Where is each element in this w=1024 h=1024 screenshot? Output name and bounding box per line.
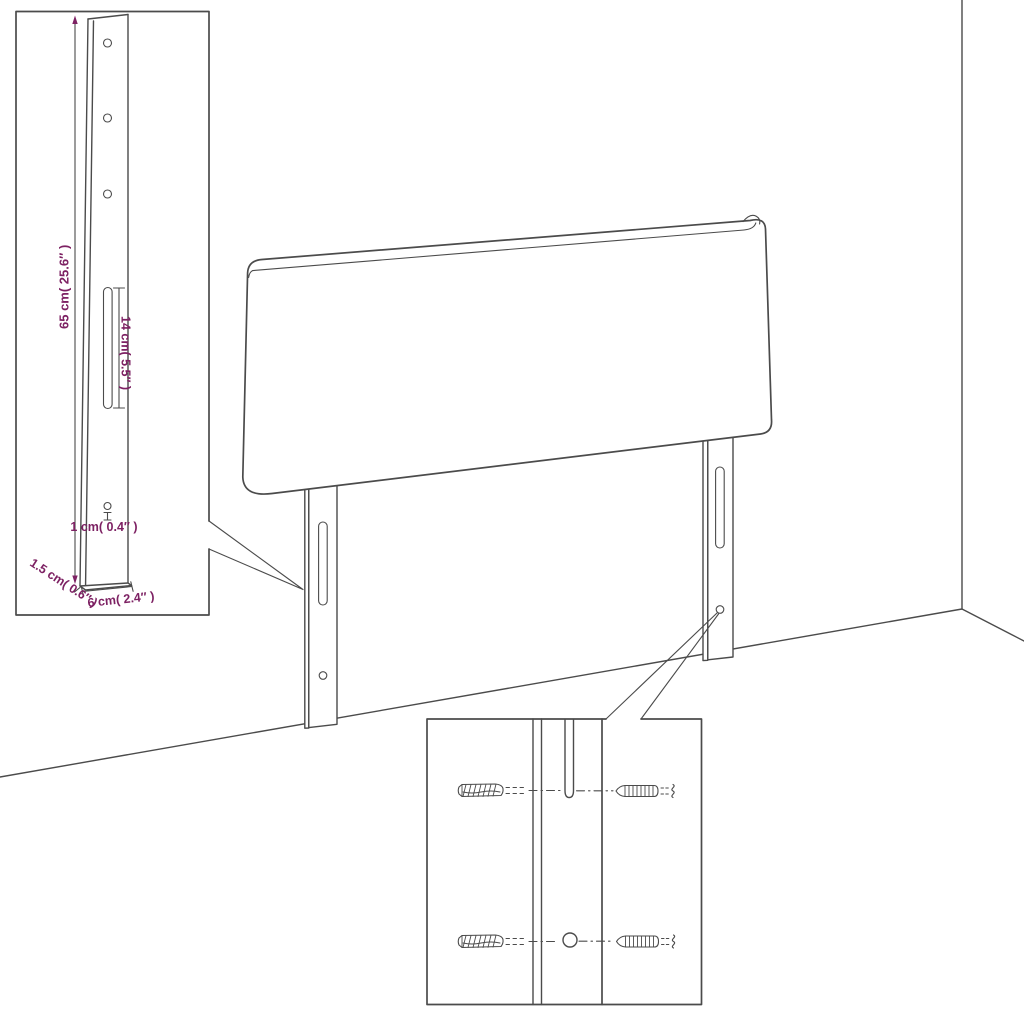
leg-left-front-face bbox=[309, 479, 337, 728]
background bbox=[0, 0, 1024, 1024]
headboard-leg-right bbox=[703, 430, 733, 661]
dimension-height-label: 65 cm( 25.6″ ) bbox=[57, 245, 72, 329]
leg-right-side-face bbox=[703, 436, 708, 661]
dimension-hole-label: 1 cm( 0.4″ ) bbox=[70, 520, 137, 534]
headboard-leg-left bbox=[305, 479, 337, 728]
diagram-canvas: 65 cm( 25.6″ ) 14 cm( 5.5″ ) 1 cm( 0.4″ … bbox=[0, 0, 1024, 1024]
leg-right-front-face bbox=[708, 430, 733, 660]
assembly-diagram: 65 cm( 25.6″ ) 14 cm( 5.5″ ) 1 cm( 0.4″ … bbox=[0, 0, 1024, 1024]
dimension-slot-label: 14 cm( 5.5″ ) bbox=[119, 316, 133, 390]
